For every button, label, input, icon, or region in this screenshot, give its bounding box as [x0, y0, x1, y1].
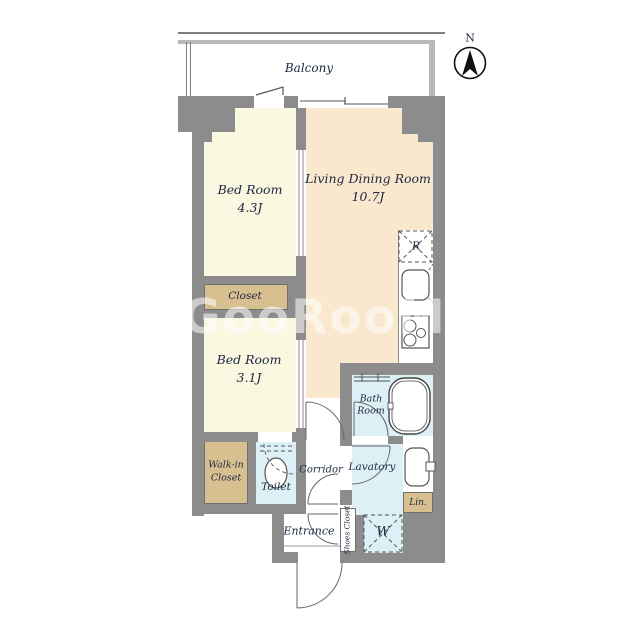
bathroom-label-line2: Room — [357, 407, 385, 418]
wall — [388, 436, 403, 444]
room-lavatory — [352, 444, 403, 515]
wall — [403, 513, 445, 563]
room-corridor — [306, 398, 340, 504]
wall — [340, 440, 352, 446]
room-toilet — [256, 440, 296, 504]
corridor-label: Corridor — [299, 464, 343, 476]
balcony-slidingdoor-gap — [298, 96, 388, 108]
washbasin-area — [403, 444, 433, 492]
bedroom1-window-gap — [254, 96, 284, 108]
linen-label: Lin. — [409, 498, 427, 508]
compass-north-label: N — [465, 33, 475, 46]
living-name-label: Living Dining Room — [305, 172, 431, 186]
watermark-text: GooRooM — [182, 290, 447, 345]
bedroom2-name-label: Bed Room — [217, 353, 282, 367]
balcony-rail-top-line — [178, 32, 445, 34]
balcony-rail-left-line1 — [186, 42, 187, 96]
wall — [272, 552, 298, 563]
window-flap-icon — [256, 87, 283, 95]
bath-door-gap — [352, 436, 388, 444]
bedroom1-name-label: Bed Room — [218, 183, 283, 197]
corridor-entrance-gap — [306, 504, 340, 514]
shoes-closet-label: Shoes Closet — [344, 505, 353, 554]
living-size-label: 10.7J — [352, 190, 385, 204]
balcony-rail-right-bar — [429, 40, 435, 96]
bathroom-label-line1: Bath — [360, 395, 383, 406]
compass-icon — [455, 48, 486, 79]
wall — [192, 276, 306, 284]
bedroom2-size-label: 3.1J — [237, 371, 262, 385]
wall — [340, 490, 352, 505]
balcony-rail-top-bar — [178, 40, 434, 44]
lavatory-label: Lavatory — [349, 461, 396, 473]
wall — [192, 504, 306, 514]
balcony-rail-left-line2 — [190, 42, 191, 96]
bedroom1-size-label: 4.3J — [238, 201, 263, 215]
wall — [340, 363, 433, 375]
floorplan-canvas: Balcony — [0, 0, 640, 640]
walkin-closet-label-line2: Closet — [211, 474, 241, 485]
bedroom2-slidingdoor-gap — [296, 340, 306, 428]
balcony-label: Balcony — [285, 62, 333, 76]
refrigerator-label: R — [412, 241, 420, 254]
walkin-closet-label-line1: Walk-in — [208, 461, 244, 472]
toilet-door-gap — [258, 432, 292, 442]
washer-label: W — [376, 526, 389, 541]
wall — [248, 440, 256, 504]
wall — [178, 96, 235, 132]
bedroom1-slidingdoor-gap — [296, 150, 306, 256]
toilet-label: Toilet — [261, 481, 291, 493]
entrance-label: Entrance — [283, 526, 334, 539]
